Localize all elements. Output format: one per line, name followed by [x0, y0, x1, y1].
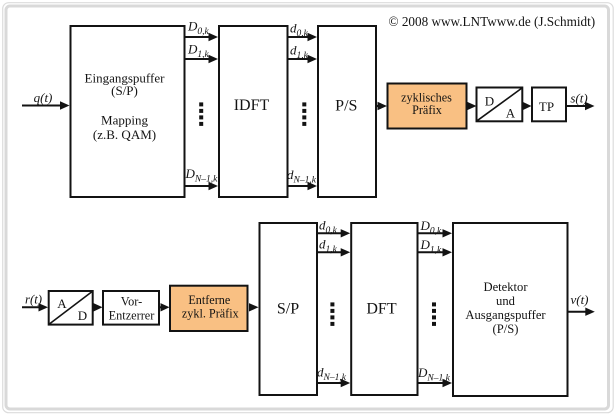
svg-text:Vor-: Vor- [121, 295, 142, 309]
svg-text:Entferne: Entferne [188, 293, 230, 307]
svg-text:Ausgangspuffer: Ausgangspuffer [465, 308, 546, 322]
svg-text:(P/S): (P/S) [493, 322, 519, 336]
svg-text:© 2008 www.LNTwww.de (J.Schmid: © 2008 www.LNTwww.de (J.Schmidt) [389, 14, 596, 29]
svg-text:D: D [485, 94, 494, 109]
svg-text:s(t): s(t) [570, 91, 587, 106]
svg-text:Entzerrer: Entzerrer [109, 309, 155, 323]
svg-text:q(t): q(t) [34, 90, 53, 105]
svg-text:S/P: S/P [277, 301, 299, 318]
svg-text:r(t): r(t) [25, 293, 42, 307]
svg-text:Detektor: Detektor [483, 280, 528, 294]
svg-text:A: A [506, 106, 516, 121]
svg-text:IDFT: IDFT [234, 97, 270, 114]
svg-text:zykl. Präfix: zykl. Präfix [182, 306, 239, 320]
svg-text:Präfix: Präfix [412, 103, 442, 117]
svg-text:A: A [57, 296, 67, 311]
svg-text:D: D [78, 308, 87, 323]
svg-text:DFT: DFT [366, 301, 396, 318]
svg-text:TP: TP [539, 99, 554, 114]
svg-text:(z.B. QAM): (z.B. QAM) [93, 127, 156, 142]
svg-text:(S/P): (S/P) [111, 83, 138, 98]
svg-text:und: und [496, 294, 516, 308]
svg-text:P/S: P/S [335, 98, 357, 115]
svg-text:v(t): v(t) [570, 292, 588, 307]
svg-text:Mapping: Mapping [101, 113, 148, 128]
